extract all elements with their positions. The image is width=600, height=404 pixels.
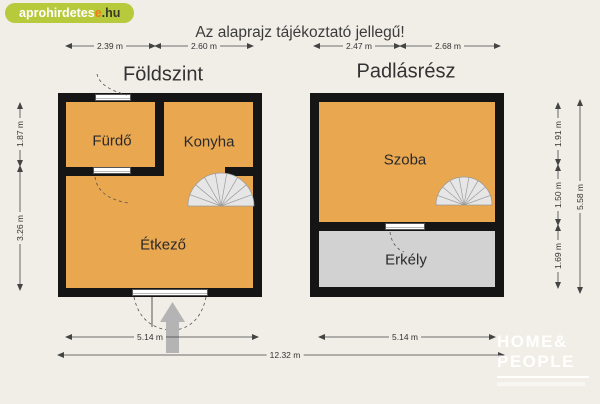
dim-right-side-1: 1.91 m [553,118,563,150]
dim-total-width: 12.32 m [267,350,304,360]
agency-logo-line2: PEOPLE [497,352,597,372]
dim-left-side-1: 1.87 m [15,118,25,150]
dim-left-side-2: 3.26 m [15,212,25,244]
balcony-door-opening [385,223,425,230]
dim-right-bottom: 5.14 m [389,332,421,342]
disclaimer-title: Az alaprajz tájékoztató jellegű! [195,24,404,42]
site-watermark-badge: aprohirdetese.hu [5,3,134,23]
agency-logo-tagline [497,382,585,386]
room-dining [66,176,253,288]
entrance-door-opening [132,289,208,296]
floorplan-canvas: aprohirdetese.hu Az alaprajz tájékoztató… [0,0,600,404]
entrance-door-swing-right [176,297,206,330]
left-plan-title: Földszint [123,64,203,87]
kitchen-dining-opening [164,167,225,176]
room-label-kitchen: Konyha [184,134,235,151]
room-label-main: Szoba [384,152,427,169]
badge-text-accent: e [95,6,102,20]
dim-right-side-2: 1.50 m [553,179,563,211]
entrance-door-swing-left [134,297,168,330]
dim-right-side-total: 5.58 m [575,181,585,213]
dim-right-top-1: 2.47 m [343,41,375,51]
room-label-bathroom: Fürdő [92,133,131,150]
dim-left-top-2: 2.60 m [188,41,220,51]
badge-text-main: aprohirdetes [19,6,95,20]
agency-logo: HOME& PEOPLE [497,332,597,386]
dim-right-side-3: 1.69 m [553,240,563,272]
bathroom-window [95,94,131,101]
dim-left-top-1: 2.39 m [94,41,126,51]
room-label-dining: Étkező [140,237,186,254]
room-label-balcony: Erkély [385,252,427,269]
entrance-arrow-icon [160,302,185,353]
badge-text-suffix: .hu [102,6,121,20]
right-plan-title: Padlásrész [357,61,456,84]
dim-left-bottom: 5.14 m [134,332,166,342]
bathroom-door-opening [93,167,131,174]
agency-logo-line1: HOME& [497,332,597,352]
agency-logo-rule [497,376,589,378]
dim-right-top-2: 2.68 m [432,41,464,51]
